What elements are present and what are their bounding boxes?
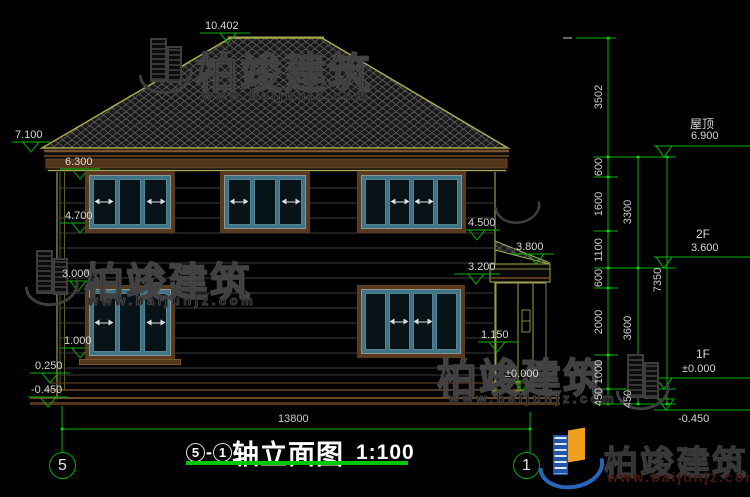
slide-arrow-icon <box>393 321 406 322</box>
level-f2-sill: 4.700 <box>65 210 93 222</box>
level-f1-head: 3.000 <box>62 268 90 280</box>
level-porch-floor: ±0.000 <box>505 368 539 380</box>
dim-segment: 450 <box>593 388 605 406</box>
level-porch-roof-edge: 3.800 <box>516 241 544 253</box>
level-2f: 3.600 <box>691 242 719 254</box>
level-porch-beam: 3.200 <box>468 261 496 273</box>
slide-arrow-icon <box>149 202 162 203</box>
title-underline <box>186 461 408 465</box>
watermark-logo-icon <box>140 36 190 96</box>
watermark-logo-icon <box>496 175 539 226</box>
slide-arrow-icon <box>233 202 246 203</box>
level-f1-sill: 1.000 <box>64 335 92 347</box>
watermark-url: www.baijunjz.com <box>202 88 370 103</box>
level-ridge: 10.402 <box>205 20 239 32</box>
slide-arrow-icon <box>98 202 111 203</box>
level-porch-roof-top: 4.500 <box>468 217 496 229</box>
axis-bubble-1: 1 <box>513 452 540 479</box>
dim-total-height: 7350 <box>652 268 664 292</box>
slide-arrow-icon <box>284 202 297 203</box>
label-1f: 1F <box>696 347 710 361</box>
level-ground-right: -0.450 <box>678 413 709 425</box>
level-porch-sill: 1.150 <box>481 329 509 341</box>
label-2f: 2F <box>696 227 710 241</box>
axis-bubble-5: 5 <box>49 452 76 479</box>
level-f2-head: 6.300 <box>65 156 93 168</box>
window-2f-left <box>85 171 175 233</box>
level-1f: ±0.000 <box>682 363 716 375</box>
level-ground-left: -0.450 <box>31 384 62 396</box>
drawing-title: 5 - 1 轴立面图 1:100 <box>186 433 415 472</box>
dim-floor: 3600 <box>622 316 634 340</box>
dim-segment: 2000 <box>593 310 605 334</box>
slide-arrow-icon <box>98 322 111 323</box>
title-separator: - <box>206 442 212 463</box>
eave-cornice <box>44 149 509 172</box>
level-eave: 7.100 <box>15 129 43 141</box>
title-name: 轴立面图 <box>232 433 344 472</box>
slide-arrow-icon <box>393 202 406 203</box>
dim-segment: 1000 <box>593 360 605 384</box>
watermark-url: www.baijunjz.com <box>88 293 256 308</box>
dim-floor: 3300 <box>622 200 634 224</box>
window-2f-middle <box>220 171 310 233</box>
cad-elevation-canvas: 柏竣建筑 www.baijunjz.com 柏竣建筑 www.baijunjz.… <box>0 0 750 497</box>
watermark-url: www.baijunjz.com <box>449 391 617 406</box>
elevation-linework <box>0 0 750 497</box>
dim-segment: 600 <box>593 269 605 287</box>
dim-segment: 600 <box>593 158 605 176</box>
window-sill <box>79 359 181 365</box>
brand-logo-icon <box>540 429 602 489</box>
dim-overall-width: 13800 <box>278 413 309 425</box>
slide-arrow-icon <box>416 321 429 322</box>
slide-arrow-icon <box>149 322 162 323</box>
dim-floor: 450 <box>622 390 634 408</box>
dim-roof-rise: 3502 <box>593 85 605 109</box>
brand-logo-url: www.baijunjz.com <box>607 469 750 485</box>
title-axis-right: 1 <box>213 443 232 462</box>
slide-arrow-icon <box>417 202 430 203</box>
dim-segment: 1600 <box>593 192 605 216</box>
level-roof-right: 6.900 <box>691 130 719 142</box>
title-axis-left: 5 <box>186 443 205 462</box>
window-2f-right <box>357 171 466 233</box>
level-plinth: 0.250 <box>35 360 63 372</box>
dim-segment: 1100 <box>593 238 605 262</box>
